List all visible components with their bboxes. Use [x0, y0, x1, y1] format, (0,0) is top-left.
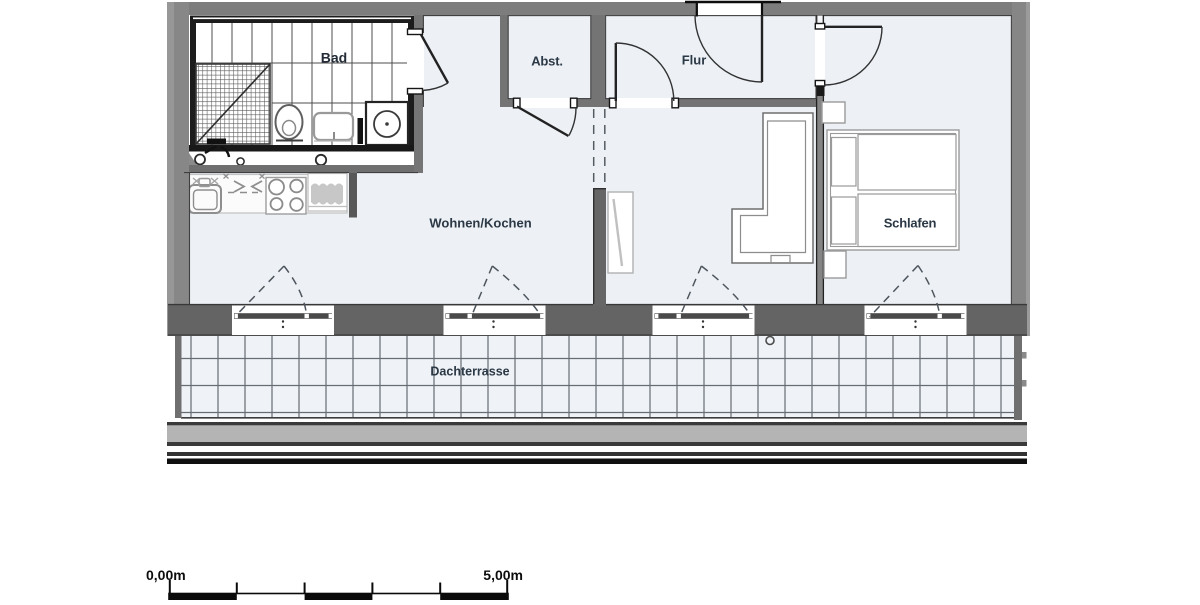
- svg-text:Flur: Flur: [682, 53, 707, 68]
- svg-text:Wohnen/Kochen: Wohnen/Kochen: [429, 216, 531, 231]
- svg-text:Schlafen: Schlafen: [884, 216, 937, 231]
- svg-text:Dachterrasse: Dachterrasse: [430, 365, 509, 379]
- svg-text:Bad: Bad: [321, 50, 347, 66]
- svg-text:5,00m: 5,00m: [483, 567, 523, 583]
- svg-text:0,00m: 0,00m: [146, 567, 186, 583]
- svg-text:Abst.: Abst.: [531, 54, 563, 69]
